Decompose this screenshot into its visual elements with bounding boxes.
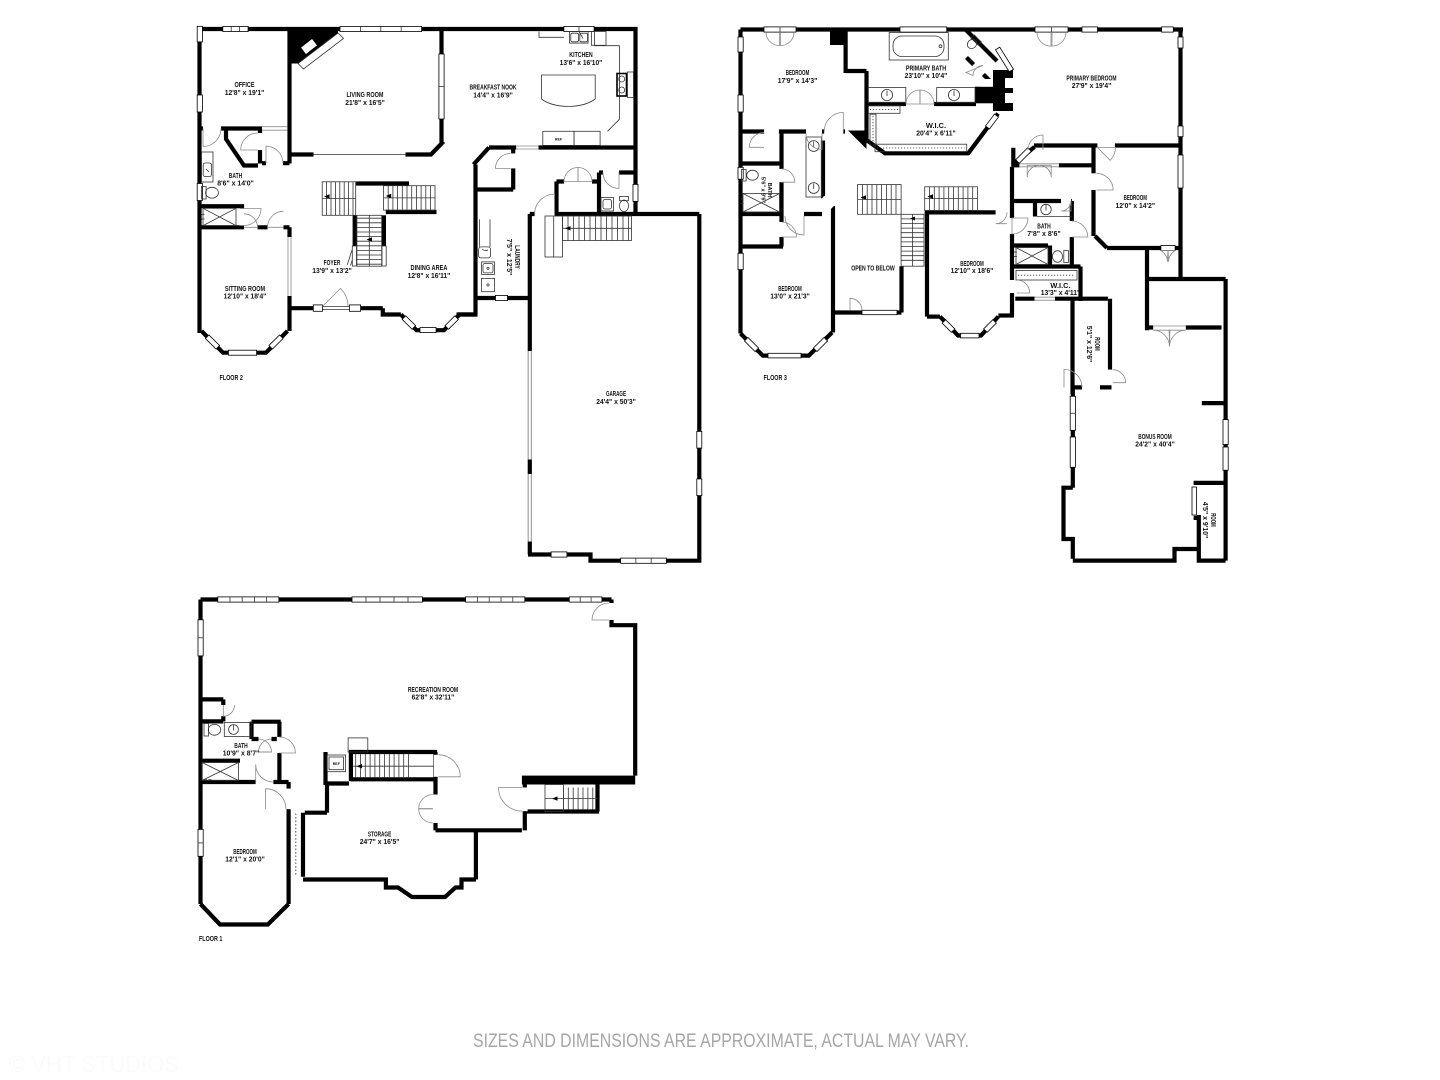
svg-text:12'1" x 20'0": 12'1" x 20'0" [225,857,265,864]
svg-text:4'5" x 9'10": 4'5" x 9'10" [1201,502,1208,539]
svg-text:BEDROOM: BEDROOM [233,849,257,856]
svg-text:GARAGE: GARAGE [606,391,626,398]
svg-text:DINING AREA: DINING AREA [411,265,448,272]
svg-text:17'9" x 14'3": 17'9" x 14'3" [778,78,818,85]
svg-text:62'8" x 32'11": 62'8" x 32'11" [412,695,455,702]
svg-text:BEDROOM: BEDROOM [1124,195,1148,202]
svg-text:FLOOR 1: FLOOR 1 [199,934,222,943]
svg-text:24'4" x 50'3": 24'4" x 50'3" [596,399,636,406]
svg-text:SITTING ROOM: SITTING ROOM [225,286,265,293]
svg-text:KITCHEN: KITCHEN [569,52,592,59]
svg-text:13'3" x 4'11": 13'3" x 4'11" [1041,290,1081,297]
svg-text:12'10" x 18'6": 12'10" x 18'6" [951,268,994,275]
svg-text:27'9" x 19'4": 27'9" x 19'4" [1072,83,1112,90]
svg-text:10'9" x 8'7": 10'9" x 8'7" [223,751,260,758]
svg-text:13'9" x 13'2": 13'9" x 13'2" [312,268,352,275]
svg-text:© VHT STUDIOS: © VHT STUDIOS [9,1051,179,1077]
svg-text:BATH: BATH [1037,224,1050,231]
svg-text:14'4" x 16'9": 14'4" x 16'9" [473,93,513,100]
svg-text:BEDROOM: BEDROOM [786,70,810,77]
svg-text:BATH: BATH [234,743,247,750]
svg-text:7'8" x 8'6": 7'8" x 8'6" [1027,231,1061,238]
svg-text:24'2" x 40'4": 24'2" x 40'4" [1135,442,1175,449]
svg-text:BREAKFAST NOOK: BREAKFAST NOOK [470,85,517,92]
svg-text:20'4" x 6'11": 20'4" x 6'11" [916,131,956,138]
svg-text:W.I.C.: W.I.C. [1050,283,1070,290]
svg-text:7'5" x 12'5": 7'5" x 12'5" [505,239,512,276]
svg-text:OFFICE: OFFICE [234,82,254,89]
svg-text:24'7" x 16'5": 24'7" x 16'5" [360,839,400,846]
svg-text:W.I.C.: W.I.C. [926,123,946,130]
svg-text:13'6" x 16'10": 13'6" x 16'10" [560,60,603,67]
svg-text:12'8" x 19'1": 12'8" x 19'1" [225,90,265,97]
svg-text:BATH: BATH [229,173,242,180]
svg-text:13'0" x 21'3": 13'0" x 21'3" [770,294,810,301]
svg-text:5'6" x 9'6": 5'6" x 9'6" [760,177,766,204]
svg-text:OPEN TO BELOW: OPEN TO BELOW [851,266,895,273]
svg-text:12'10" x 18'4": 12'10" x 18'4" [224,294,267,301]
svg-text:ROOM: ROOM [1209,513,1216,527]
svg-text:REF: REF [333,762,341,766]
svg-text:LAUNDRY: LAUNDRY [513,245,520,269]
svg-text:FLOOR 3: FLOOR 3 [764,373,787,382]
svg-text:12'0" x 14'2": 12'0" x 14'2" [1116,203,1156,210]
svg-text:FLOOR 2: FLOOR 2 [220,373,243,382]
svg-text:PRIMARY BEDROOM: PRIMARY BEDROOM [1066,76,1116,83]
svg-text:21'8" x 16'5": 21'8" x 16'5" [345,100,385,107]
svg-text:RECREATION ROOM: RECREATION ROOM [408,687,458,694]
svg-text:5'1" x 12'6": 5'1" x 12'6" [1085,326,1092,363]
svg-text:SIZES AND DIMENSIONS ARE APPRO: SIZES AND DIMENSIONS ARE APPROXIMATE, AC… [473,1031,969,1052]
svg-text:BEDROOM: BEDROOM [960,261,984,268]
svg-text:BATH: BATH [766,183,772,198]
svg-text:FOYER: FOYER [324,260,341,267]
svg-text:LIVING ROOM: LIVING ROOM [347,92,384,99]
svg-text:23'10" x 10'4": 23'10" x 10'4" [905,73,948,80]
svg-text:BEDROOM: BEDROOM [778,286,802,293]
svg-text:12'8" x 16'11": 12'8" x 16'11" [408,273,451,280]
svg-text:REF: REF [555,138,563,142]
svg-text:STORAGE: STORAGE [368,832,392,839]
svg-text:BONUS ROOM: BONUS ROOM [1138,434,1172,441]
svg-text:8'6" x 14'0": 8'6" x 14'0" [217,181,254,188]
svg-text:ROOM: ROOM [1093,337,1100,351]
svg-text:PRIMARY BATH: PRIMARY BATH [906,66,946,73]
